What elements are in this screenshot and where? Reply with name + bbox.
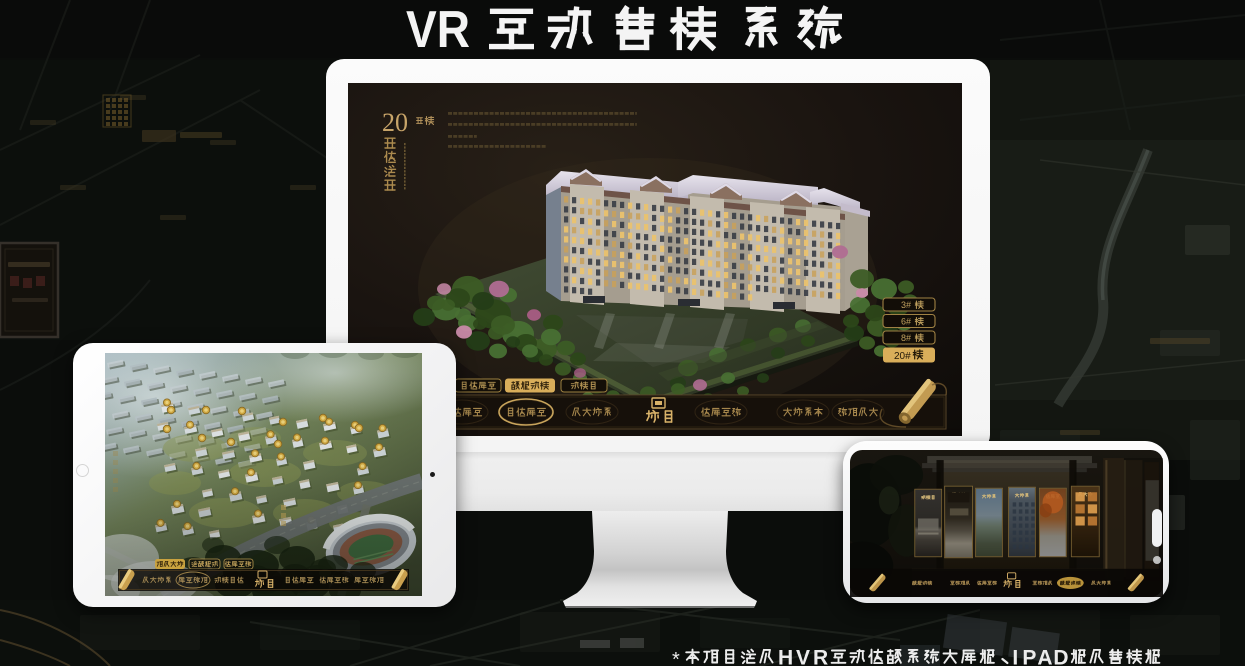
svg-text:8#: 8# xyxy=(901,333,911,343)
svg-text:D: D xyxy=(1053,647,1068,666)
svg-text:20: 20 xyxy=(382,108,408,137)
svg-text:VR: VR xyxy=(406,1,470,59)
svg-text:A: A xyxy=(1037,647,1052,666)
svg-text:R: R xyxy=(813,647,828,666)
svg-text:20#: 20# xyxy=(894,351,911,362)
svg-text:V: V xyxy=(796,647,810,666)
svg-text:*: * xyxy=(672,649,680,666)
svg-text:I: I xyxy=(1012,647,1018,666)
svg-text:3#: 3# xyxy=(901,300,911,310)
svg-text:H: H xyxy=(778,647,793,666)
svg-text:P: P xyxy=(1022,647,1036,666)
svg-text:6#: 6# xyxy=(901,317,911,327)
